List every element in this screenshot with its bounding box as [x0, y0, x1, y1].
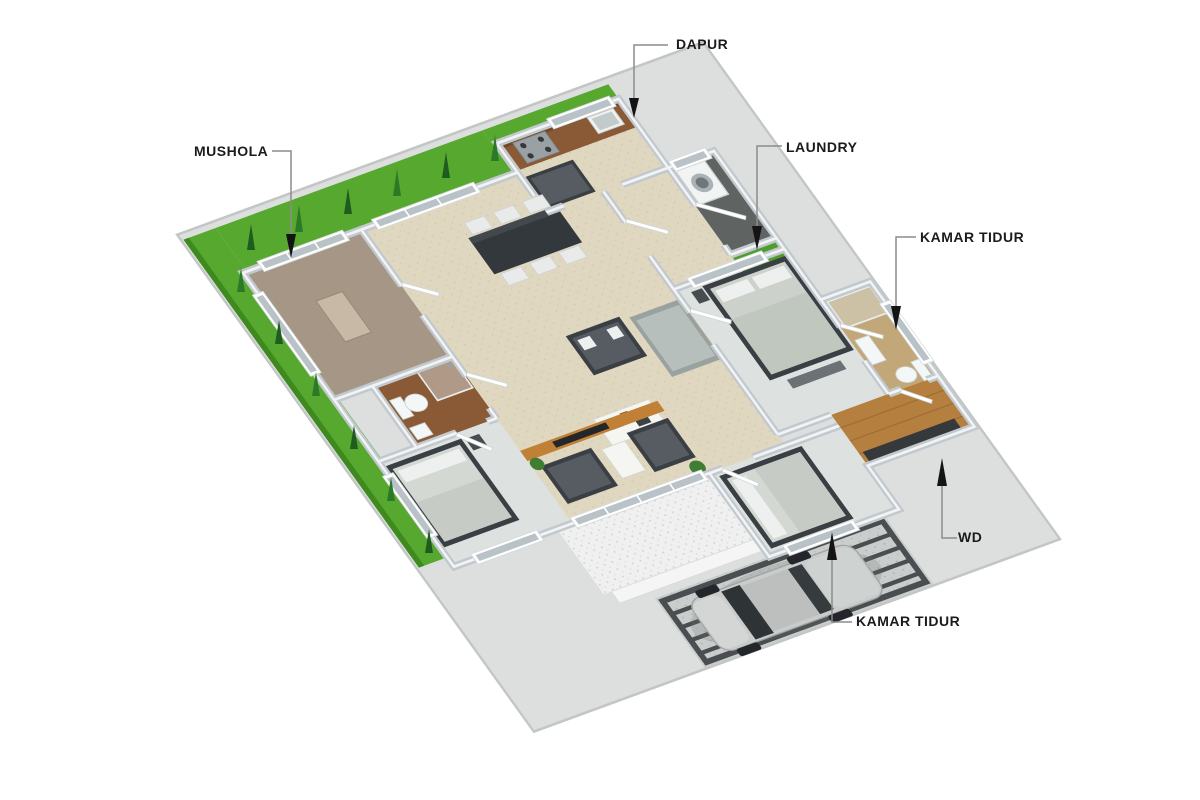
floor-plan-rendering — [0, 0, 1200, 800]
label-laundry: LAUNDRY — [786, 139, 857, 155]
label-mushola: MUSHOLA — [194, 143, 268, 159]
label-kamar-tidur-2: KAMAR TIDUR — [856, 613, 960, 629]
label-wd: WD — [958, 529, 982, 545]
floor-plan-figure: DAPUR MUSHOLA LAUNDRY KAMAR TIDUR WD KAM… — [0, 0, 1200, 800]
label-kamar-tidur-1: KAMAR TIDUR — [920, 229, 1024, 245]
leader-kamar-tidur-1 — [891, 237, 916, 330]
label-dapur: DAPUR — [676, 36, 728, 52]
